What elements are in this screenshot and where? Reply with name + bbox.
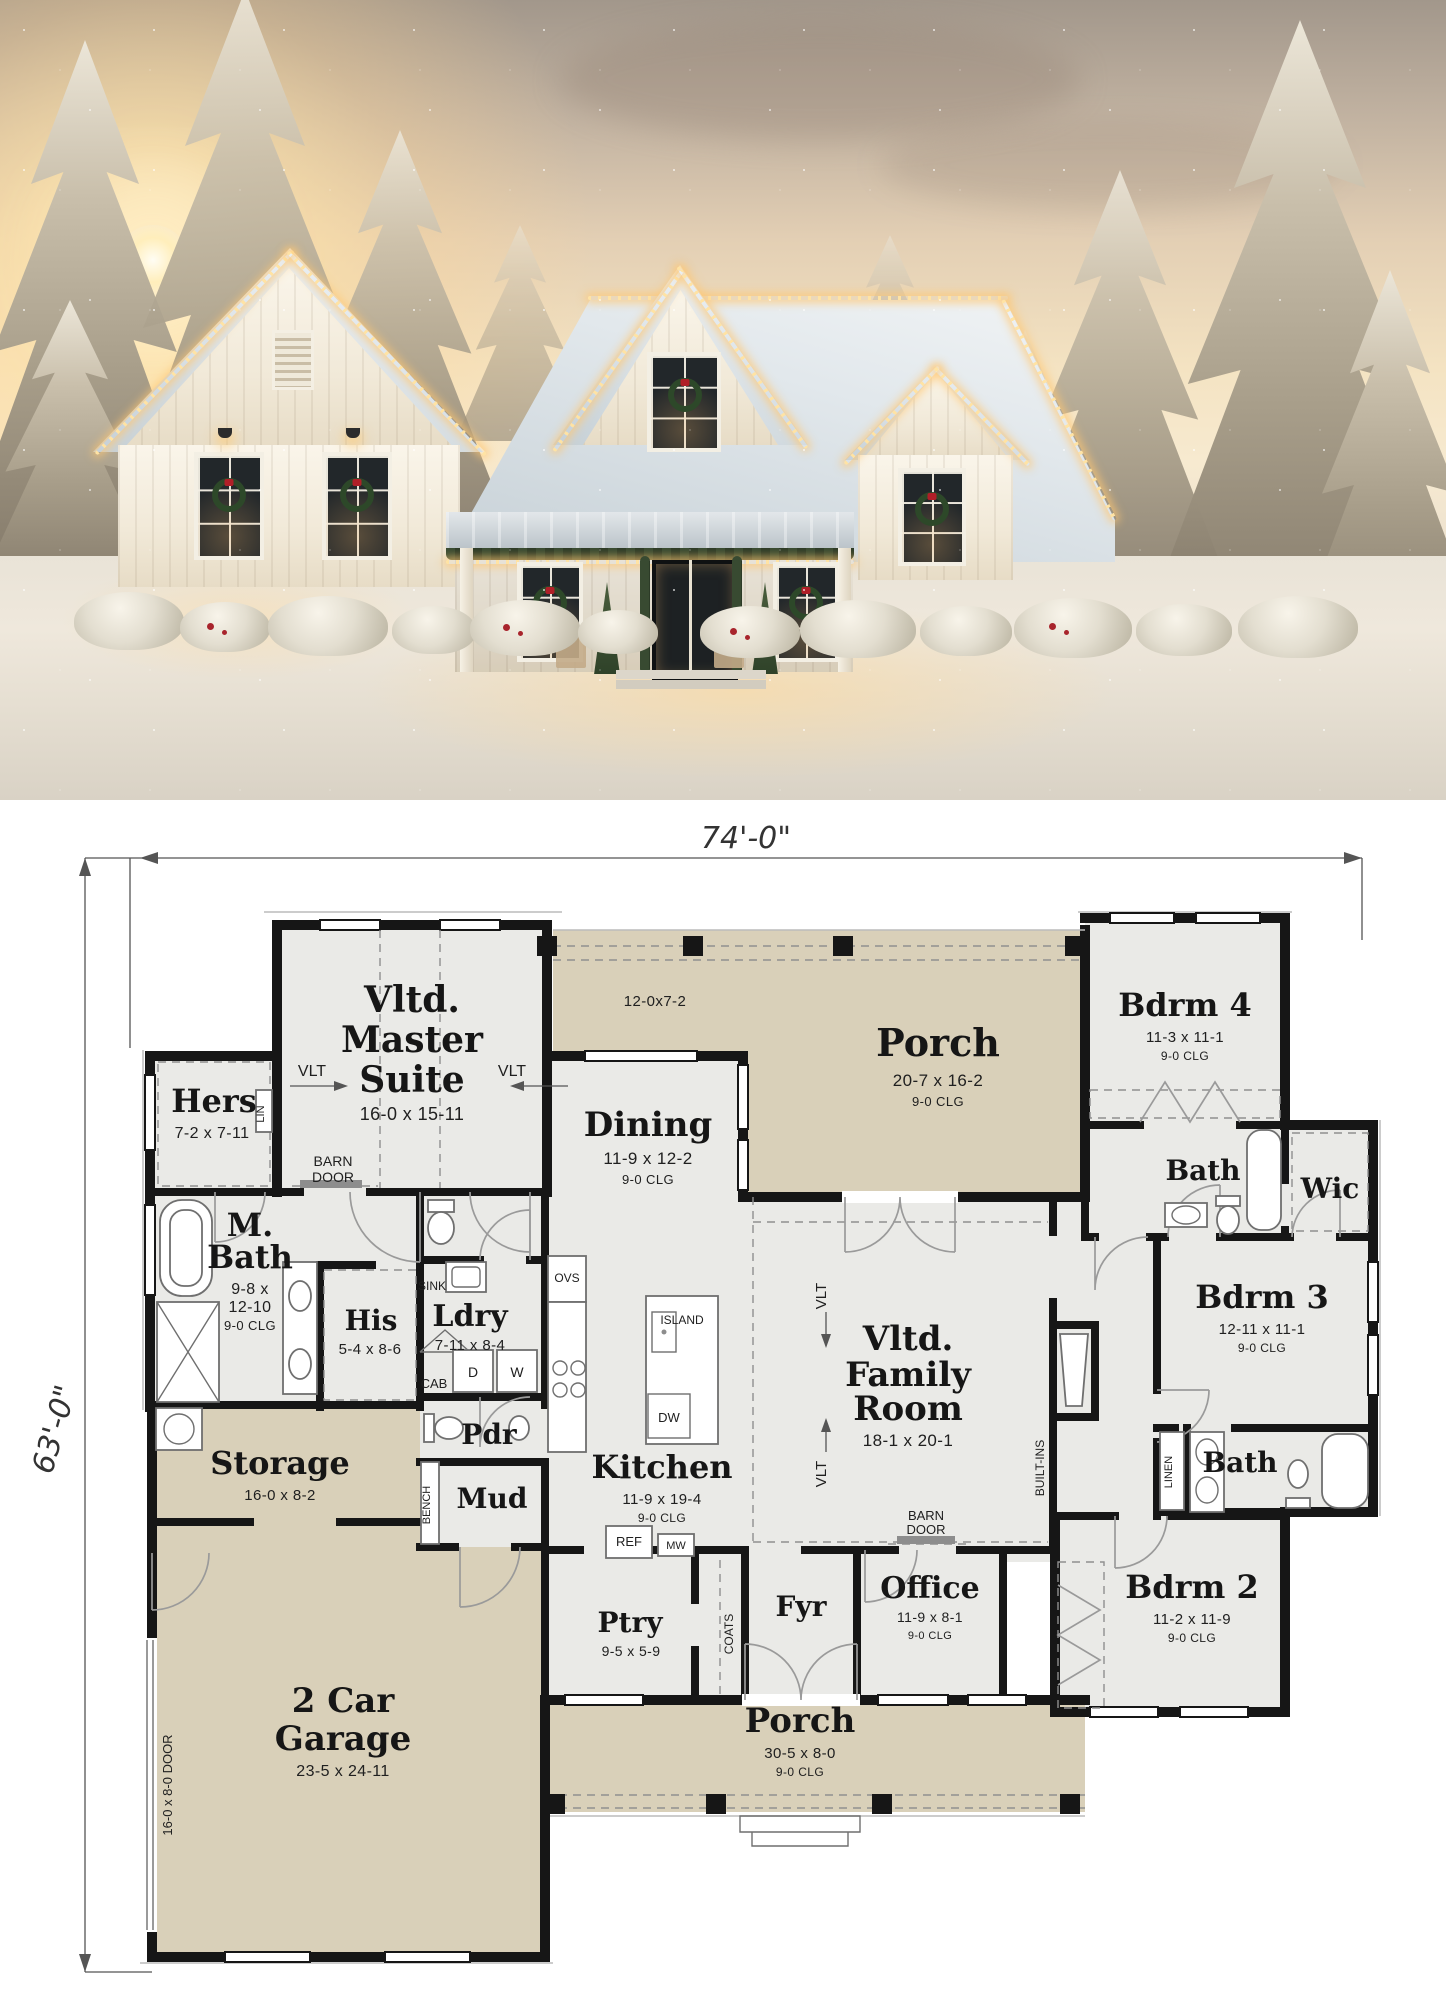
room-mbath-d2: 12-10 xyxy=(229,1299,272,1316)
lin-label: LIN xyxy=(255,1105,267,1122)
ref-label: REF xyxy=(616,1534,642,1549)
ovs-label: OVS xyxy=(554,1271,579,1285)
room-ldry-dims: 7-11 x 8-4 xyxy=(435,1337,505,1354)
room-family-dims: 18-1 x 20-1 xyxy=(863,1431,953,1450)
room-office-dims: 11-9 x 8-1 xyxy=(897,1609,963,1625)
room-dining: Dining xyxy=(584,1105,713,1145)
room-master-l2: Master xyxy=(341,1019,484,1061)
room-office: Office xyxy=(880,1571,980,1606)
washer-label: W xyxy=(510,1364,524,1380)
room-ptry: Ptry xyxy=(597,1606,663,1639)
coats-label: COATS xyxy=(722,1614,736,1654)
room-porch-top: Porch xyxy=(876,1020,1000,1065)
built-ins-label: BUILT-INS xyxy=(1033,1440,1047,1496)
room-kitchen: Kitchen xyxy=(591,1448,732,1486)
dw-label: DW xyxy=(658,1410,680,1425)
room-fyr: Fyr xyxy=(776,1590,828,1623)
vlt-label: VLT xyxy=(498,1063,526,1080)
falling-snow xyxy=(0,0,1446,800)
room-bdrm4: Bdrm 4 xyxy=(1118,986,1252,1024)
room-bdrm2-dims: 11-2 x 11-9 xyxy=(1153,1611,1231,1628)
room-mud: Mud xyxy=(457,1482,528,1515)
room-bdrm3-clg: 9-0 CLG xyxy=(1238,1341,1286,1355)
height-dimension: 63'-0" xyxy=(26,1381,84,1477)
room-pdr: Pdr xyxy=(461,1418,518,1451)
room-hers-dims: 7-2 x 7-11 xyxy=(175,1125,250,1142)
room-porch-bottom-clg: 9-0 CLG xyxy=(776,1765,824,1779)
floor-plan-drawing: 74'-0" 63'-0" Vltd. Master Suite 16-0 x … xyxy=(0,800,1446,2000)
house-plan-sheet: 74'-0" 63'-0" Vltd. Master Suite 16-0 x … xyxy=(0,0,1446,2000)
room-mbath-l2: Bath xyxy=(207,1238,293,1276)
room-bdrm4-dims: 11-3 x 11-1 xyxy=(1146,1029,1224,1046)
room-storage-dims: 16-0 x 8-2 xyxy=(244,1487,316,1504)
island-label: ISLAND xyxy=(660,1313,704,1327)
room-family-l1: Vltd. xyxy=(862,1319,954,1359)
room-bdrm2: Bdrm 2 xyxy=(1125,1568,1259,1606)
room-master-l3: Suite xyxy=(359,1059,464,1101)
room-master-l1: Vltd. xyxy=(363,979,460,1021)
room-bath-lower: Bath xyxy=(1202,1446,1277,1479)
room-bdrm3: Bdrm 3 xyxy=(1195,1278,1329,1316)
vlt-label: VLT xyxy=(813,1283,830,1309)
room-bdrm2-clg: 9-0 CLG xyxy=(1168,1631,1216,1645)
room-garage-l1: 2 Car xyxy=(292,1681,396,1721)
barn-door-label: BARN xyxy=(908,1508,944,1523)
room-dining-dims: 11-9 x 12-2 xyxy=(603,1149,692,1168)
room-garage-l2: Garage xyxy=(275,1719,411,1759)
room-storage: Storage xyxy=(210,1444,350,1482)
barn-door-label: DOOR xyxy=(907,1522,946,1537)
room-his-dims: 5-4 x 8-6 xyxy=(339,1341,402,1358)
room-porch-bottom-dims: 30-5 x 8-0 xyxy=(764,1745,836,1762)
room-bdrm3-dims: 12-11 x 11-1 xyxy=(1219,1321,1306,1338)
room-porch-bottom: Porch xyxy=(745,1701,856,1741)
garage-door-dims: 16-0 x 8-0 DOOR xyxy=(160,1734,175,1835)
sink-label: SINK xyxy=(418,1279,446,1293)
room-office-clg: 9-0 CLG xyxy=(908,1630,952,1642)
mw-label: MW xyxy=(666,1540,686,1552)
room-wic: Wic xyxy=(1300,1172,1360,1205)
vlt-label: VLT xyxy=(813,1461,830,1487)
room-porch-top-clg: 9-0 CLG xyxy=(912,1094,964,1109)
room-garage-dims: 23-5 x 24-11 xyxy=(296,1763,389,1780)
width-dimension: 74'-0" xyxy=(701,821,791,856)
cab-label: CAB xyxy=(421,1376,448,1391)
vlt-label: VLT xyxy=(298,1063,326,1080)
exterior-photo xyxy=(0,0,1446,800)
room-hers: Hers xyxy=(171,1082,256,1120)
room-ptry-dims: 9-5 x 5-9 xyxy=(602,1643,661,1659)
room-kitchen-dims: 11-9 x 19-4 xyxy=(622,1491,701,1508)
room-his: His xyxy=(345,1304,398,1337)
room-kitchen-clg: 9-0 CLG xyxy=(638,1511,686,1525)
porch-wing-dims: 12-0x7-2 xyxy=(624,993,686,1010)
room-mbath-clg: 9-0 CLG xyxy=(224,1318,276,1333)
room-bath-top: Bath xyxy=(1165,1154,1240,1187)
room-dining-clg: 9-0 CLG xyxy=(622,1172,674,1187)
room-mbath-d1: 9-8 x xyxy=(231,1281,269,1298)
room-bdrm4-clg: 9-0 CLG xyxy=(1161,1049,1209,1063)
barn-door-label: BARN xyxy=(314,1153,353,1169)
room-family-l3: Room xyxy=(853,1389,963,1429)
barn-door-label: DOOR xyxy=(312,1169,354,1185)
bench-label: BENCH xyxy=(421,1486,433,1525)
room-porch-top-dims: 20-7 x 16-2 xyxy=(893,1071,983,1090)
dryer-label: D xyxy=(468,1364,478,1380)
room-ldry: Ldry xyxy=(432,1299,509,1334)
linen-label: LINEN xyxy=(1163,1456,1175,1488)
room-master-dims: 16-0 x 15-11 xyxy=(360,1104,465,1124)
floor-plan: 74'-0" 63'-0" Vltd. Master Suite 16-0 x … xyxy=(0,800,1446,2000)
